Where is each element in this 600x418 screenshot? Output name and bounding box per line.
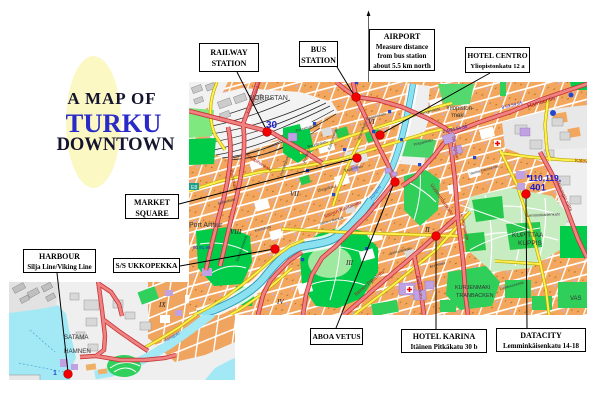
svg-text:IX: IX — [158, 301, 166, 309]
svg-text:Kaleva: Kaleva — [575, 158, 591, 165]
svg-text:VAS: VAS — [570, 296, 582, 302]
svg-text:1: 1 — [53, 370, 57, 377]
svg-text:SATAMA: SATAMA — [64, 334, 89, 341]
svg-text:E8: E8 — [191, 185, 197, 191]
svg-text:HAMNEN: HAMNEN — [64, 348, 91, 355]
svg-text:Yliopiston-: Yliopiston- — [446, 106, 474, 112]
svg-text:II: II — [424, 226, 430, 234]
svg-text:IV: IV — [276, 298, 284, 306]
svg-text:Port Arthur: Port Arthur — [189, 222, 223, 229]
svg-text:KUPPIS: KUPPIS — [518, 240, 543, 247]
svg-text:KUPITTAA: KUPITTAA — [512, 232, 544, 239]
svg-text:401: 401 — [530, 183, 547, 194]
svg-text:maki: maki — [452, 113, 465, 119]
svg-text:TRANBACKEN: TRANBACKEN — [456, 293, 494, 299]
svg-text:90,91,99: 90,91,99 — [193, 245, 211, 250]
svg-text:VII: VII — [290, 190, 300, 198]
svg-text:KURJENMAKI: KURJENMAKI — [455, 285, 491, 291]
svg-text:VIII: VIII — [230, 228, 242, 236]
svg-text:III: III — [345, 259, 354, 267]
